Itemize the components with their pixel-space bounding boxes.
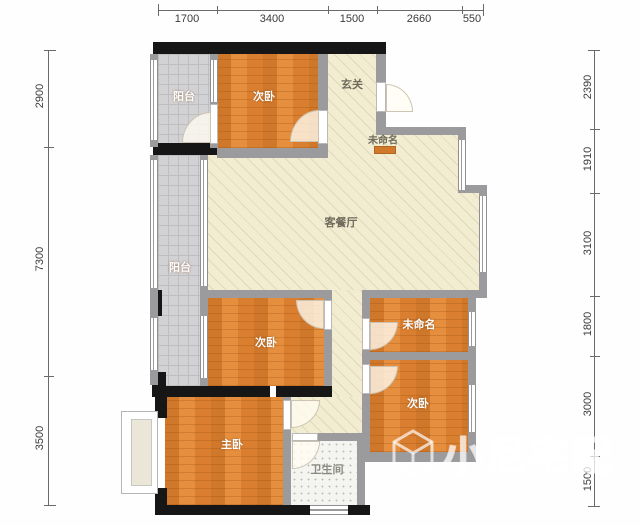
dimension-value: 3400 <box>250 13 294 25</box>
dimension-tick <box>217 6 218 14</box>
shoe-cabinet <box>374 146 396 154</box>
room-label-master-bedroom: 主卧 <box>221 436 243 452</box>
door-frame <box>210 104 218 144</box>
dimension-value: 3500 <box>34 416 46 460</box>
wall-segment <box>348 505 370 515</box>
dimension-line-top <box>158 10 483 11</box>
window <box>200 316 208 378</box>
wall-segment <box>155 505 310 515</box>
outside-area <box>466 127 487 193</box>
dimension-value: 1800 <box>582 302 594 346</box>
window <box>479 196 487 272</box>
dimension-tick <box>158 4 159 16</box>
dimension-value: 550 <box>450 13 494 25</box>
wall-segment <box>217 148 328 158</box>
dimension-value: 1500 <box>330 13 374 25</box>
room-label-bedroom-top: 次卧 <box>253 88 275 104</box>
room-label-bedroom-right: 次卧 <box>407 395 429 411</box>
window <box>150 60 158 140</box>
dimension-tick <box>328 6 329 14</box>
outside-area <box>386 42 487 127</box>
room-label-entry-hall: 玄关 <box>341 76 363 92</box>
wall-segment <box>158 386 270 397</box>
door-frame <box>318 110 328 144</box>
window <box>200 160 208 286</box>
bay-window-inner <box>131 419 152 486</box>
room-label-bathroom: 卫生间 <box>311 461 344 477</box>
dimension-value: 2390 <box>582 65 594 109</box>
dimension-value: 3100 <box>582 221 594 265</box>
window <box>468 312 476 346</box>
dimension-line-right <box>594 50 595 506</box>
window <box>210 60 218 102</box>
wall-segment <box>362 352 476 360</box>
dimension-tick <box>44 376 54 377</box>
wall-segment <box>153 143 217 155</box>
room-label-balcony-top: 阳台 <box>173 88 195 104</box>
window <box>150 318 158 370</box>
room-label-unnamed-top: 未命名 <box>368 132 398 147</box>
window <box>458 140 466 190</box>
dimension-tick <box>588 506 600 507</box>
window <box>468 385 476 432</box>
dimension-tick <box>377 6 378 14</box>
room-label-unnamed-right: 未命名 <box>403 316 436 332</box>
dimension-value: 1700 <box>165 13 209 25</box>
dimension-value: 2900 <box>34 74 46 118</box>
door-frame <box>283 400 291 430</box>
window <box>310 505 348 515</box>
dimension-tick <box>590 356 600 357</box>
dimension-tick <box>590 193 600 194</box>
dimension-tick <box>44 50 56 51</box>
dimension-line-left <box>48 50 49 505</box>
room-label-living-dining: 客餐厅 <box>325 214 358 230</box>
floor-plan: 阳台 次卧 玄关 未命名 客餐厅 阳台 次卧 未命名 次卧 主卧 卫生间 170… <box>0 0 640 526</box>
dimension-tick <box>44 505 56 506</box>
dimension-tick <box>588 50 600 51</box>
door-frame <box>324 300 332 330</box>
wall-segment <box>357 433 365 505</box>
room-label-bedroom-middle: 次卧 <box>255 334 277 350</box>
wall-segment <box>283 433 291 505</box>
room-label-balcony-left: 阳台 <box>169 259 191 275</box>
door-frame <box>362 364 370 394</box>
dimension-value: 2660 <box>397 13 441 25</box>
door-frame <box>362 318 370 350</box>
wall-segment <box>204 290 332 298</box>
window <box>150 160 158 288</box>
dimension-value: 7300 <box>34 237 46 281</box>
wall-segment <box>362 452 476 462</box>
dimension-value: 1500 <box>582 457 594 501</box>
wall-segment <box>276 386 332 397</box>
dimension-tick <box>44 147 54 148</box>
dimension-value: 3000 <box>582 382 594 426</box>
dimension-tick <box>590 296 600 297</box>
door-frame <box>376 82 386 112</box>
wall-segment <box>153 42 386 54</box>
dimension-tick <box>590 129 600 130</box>
dimension-value: 1910 <box>582 137 594 181</box>
door-frame <box>292 433 318 441</box>
